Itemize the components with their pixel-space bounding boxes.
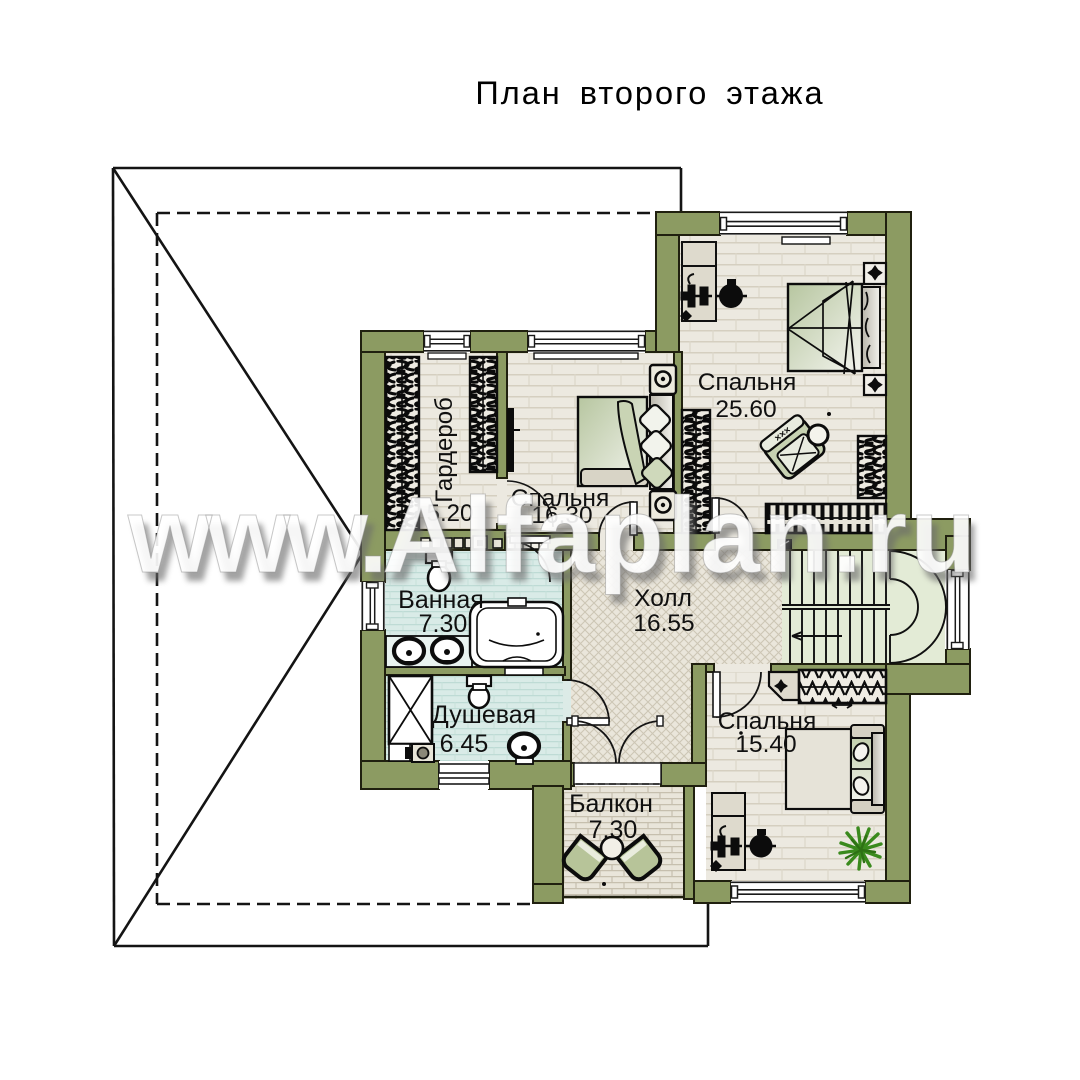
svg-text:6.45: 6.45 [440, 730, 489, 758]
svg-text:15.40: 15.40 [735, 731, 796, 758]
svg-text:7.30: 7.30 [419, 610, 468, 638]
svg-text:План второго этажа: План второго этажа [475, 75, 824, 111]
svg-text:25.60: 25.60 [715, 396, 776, 423]
svg-text:7.30: 7.30 [589, 816, 638, 844]
svg-text:www.Alfaplan.ru: www.Alfaplan.ru [127, 474, 979, 595]
svg-text:Спальня: Спальня [698, 369, 796, 396]
svg-text:Балкон: Балкон [569, 790, 653, 818]
svg-text:Душевая: Душевая [432, 701, 536, 729]
svg-text:16.55: 16.55 [633, 610, 694, 637]
